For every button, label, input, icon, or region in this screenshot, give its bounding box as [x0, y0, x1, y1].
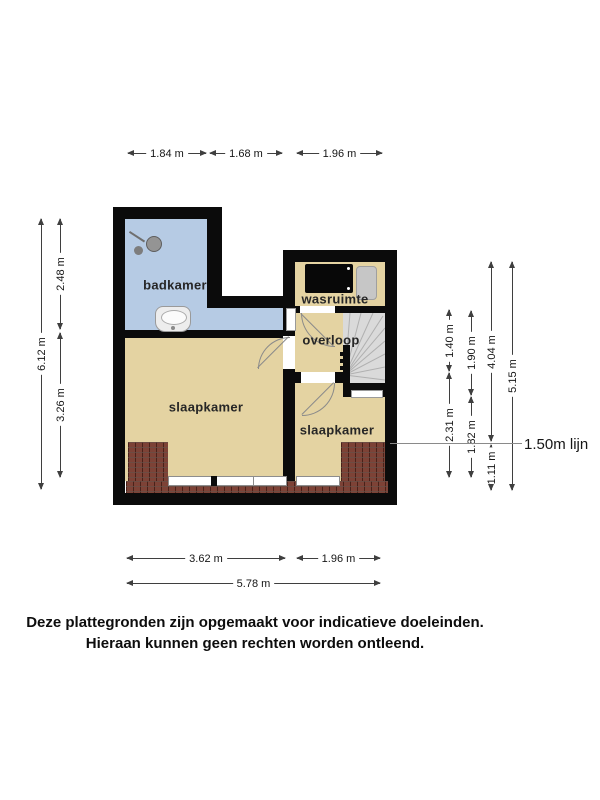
- dim-right-3b: 1.11 m: [491, 445, 492, 490]
- dim-left-total: 6.12 m: [41, 219, 42, 489]
- roof-slope-hatch: [128, 442, 168, 482]
- height-line-150: [390, 443, 522, 444]
- door-wasruimte-opening: [300, 306, 335, 313]
- room-label-overloop: overloop: [302, 333, 359, 348]
- wall-bottom: [113, 493, 397, 505]
- dim-top-3: 1.96 m: [297, 153, 382, 154]
- dim-label: 4.04 m: [486, 331, 498, 373]
- footer-disclaimer: Deze plattegronden zijn opgemaakt voor i…: [0, 612, 510, 654]
- radiator-icon: [340, 359, 349, 363]
- roof-slope-hatch: [341, 442, 385, 481]
- footer-line-2: Hieraan kunnen geen rechten worden ontle…: [0, 633, 510, 654]
- dim-right-total: 5.15 m: [512, 262, 513, 490]
- dim-top-2: 1.68 m: [210, 153, 282, 154]
- stairwell-opening: [351, 390, 383, 398]
- floor-plan-page: badkamer wasruimte overloop slaapkamer s…: [0, 0, 600, 800]
- room-label-badkamer: badkamer: [143, 278, 207, 293]
- dim-top-1: 1.84 m: [128, 153, 206, 154]
- height-line-150-label: 1.50m lijn: [524, 436, 588, 453]
- dim-label: 1.96 m: [319, 148, 361, 160]
- dim-label: 1.90 m: [466, 332, 478, 374]
- dim-label: 6.12 m: [36, 333, 48, 375]
- dim-label: 2.31 m: [444, 404, 456, 446]
- dim-label: 1.11 m: [486, 447, 498, 488]
- shower-icon: [128, 228, 164, 260]
- radiator-icon: [340, 366, 349, 370]
- dim-right-1b: 2.31 m: [449, 373, 450, 477]
- door-badkamer: [286, 308, 296, 331]
- wall-left: [113, 207, 125, 505]
- wall-top: [113, 207, 222, 219]
- window-mullion: [211, 476, 217, 486]
- dim-right-2b: 1.82 m: [471, 397, 472, 477]
- dim-bottom-1: 3.62 m: [127, 558, 285, 559]
- radiator-icon: [340, 352, 349, 356]
- dim-right-2a: 1.90 m: [471, 311, 472, 395]
- dim-label: 1.40 m: [444, 320, 456, 362]
- window: [168, 476, 287, 486]
- dim-bottom-total: 5.78 m: [127, 583, 380, 584]
- dim-right-3a: 4.04 m: [491, 262, 492, 441]
- dim-label: 1.84 m: [146, 148, 188, 160]
- dim-label: 2.48 m: [55, 253, 67, 295]
- dim-left-lower: 3.26 m: [60, 333, 61, 477]
- dim-label: 5.15 m: [507, 355, 519, 397]
- wall-badkamer-right: [207, 207, 222, 308]
- dim-label: 1.68 m: [225, 148, 267, 160]
- dim-label: 3.62 m: [185, 553, 227, 565]
- room-label-slaapkamer-left: slaapkamer: [169, 400, 244, 415]
- wall-notch-bottom: [207, 296, 295, 308]
- dim-label: 3.26 m: [55, 384, 67, 426]
- dim-label: 1.96 m: [318, 553, 360, 565]
- sink-icon: [155, 306, 191, 332]
- dim-label: 5.78 m: [233, 578, 275, 590]
- wall-badkamer-slaapkamer: [113, 330, 295, 338]
- room-label-slaapkamer-right: slaapkamer: [300, 423, 375, 438]
- wall-right: [385, 250, 397, 505]
- dim-left-upper: 2.48 m: [60, 219, 61, 329]
- dim-label: 1.82 m: [466, 416, 478, 458]
- footer-line-1: Deze plattegronden zijn opgemaakt voor i…: [0, 612, 510, 633]
- room-label-wasruimte: wasruimte: [301, 292, 368, 307]
- door-slaapkamer-right-opening: [301, 372, 335, 383]
- dim-bottom-2: 1.96 m: [297, 558, 380, 559]
- washing-machine-icon: [305, 264, 353, 293]
- wall-wasruimte-top: [283, 250, 397, 262]
- window: [296, 476, 340, 486]
- dim-right-1a: 1.40 m: [449, 310, 450, 371]
